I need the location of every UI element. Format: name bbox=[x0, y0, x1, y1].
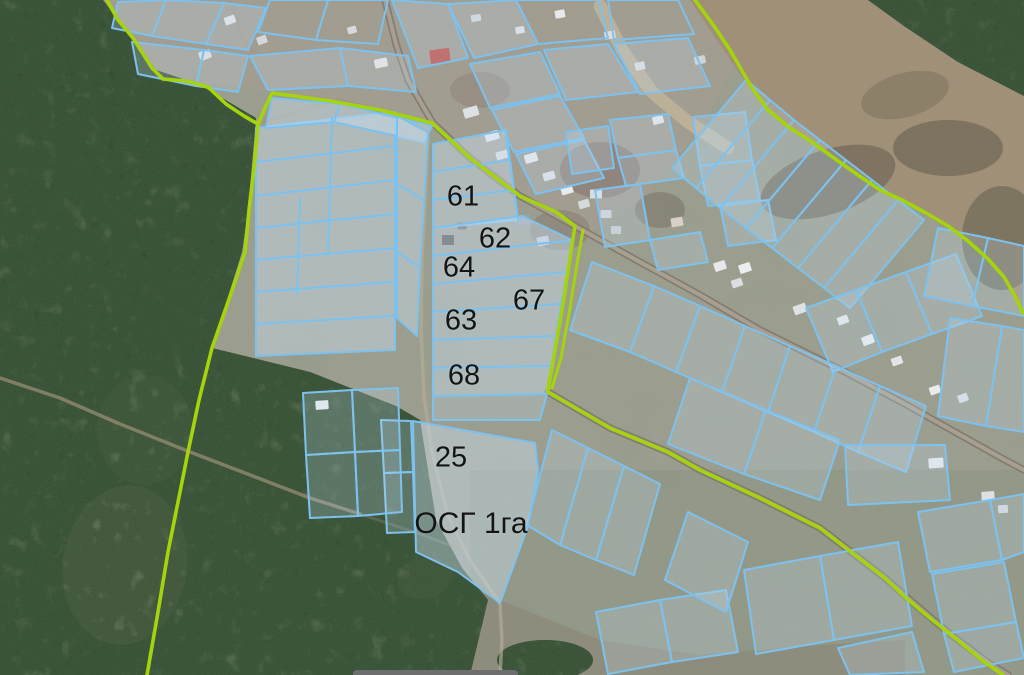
cadastral-parcel[interactable] bbox=[596, 600, 672, 674]
cadastral-parcel[interactable] bbox=[845, 445, 950, 505]
parcel-label: ОСГ 1га bbox=[414, 509, 527, 539]
cadastral-parcel[interactable] bbox=[566, 126, 614, 174]
parcel-label: 61 bbox=[447, 183, 479, 212]
cadastral-parcel[interactable] bbox=[306, 452, 358, 518]
parcel-label: 68 bbox=[448, 362, 480, 391]
building bbox=[554, 9, 565, 19]
cadastral-parcel[interactable] bbox=[595, 184, 650, 247]
parcel-label: 64 bbox=[443, 254, 475, 283]
map-viewport[interactable]: 61626467636825ОСГ 1га bbox=[0, 0, 1024, 675]
cadastral-parcel[interactable] bbox=[650, 232, 708, 270]
parcel-label: 63 bbox=[445, 307, 477, 336]
cadastral-parcel[interactable] bbox=[355, 450, 402, 516]
cadastral-parcel[interactable] bbox=[433, 394, 547, 420]
bottom-toolbar-partial[interactable] bbox=[353, 670, 518, 675]
cadastral-parcel[interactable] bbox=[918, 500, 1002, 572]
cadastral-parcel[interactable] bbox=[744, 556, 834, 654]
parcel-label: 25 bbox=[435, 444, 467, 473]
cadastral-parcel[interactable] bbox=[250, 48, 348, 90]
parcel-label: 67 bbox=[513, 287, 545, 316]
cadastral-parcel[interactable] bbox=[256, 316, 395, 356]
parcel-label: 62 bbox=[479, 225, 511, 254]
satellite-map[interactable] bbox=[0, 0, 1024, 675]
cadastral-parcel[interactable] bbox=[303, 390, 355, 455]
cadastral-parcel[interactable] bbox=[340, 48, 416, 92]
cadastral-parcel[interactable] bbox=[352, 388, 400, 452]
